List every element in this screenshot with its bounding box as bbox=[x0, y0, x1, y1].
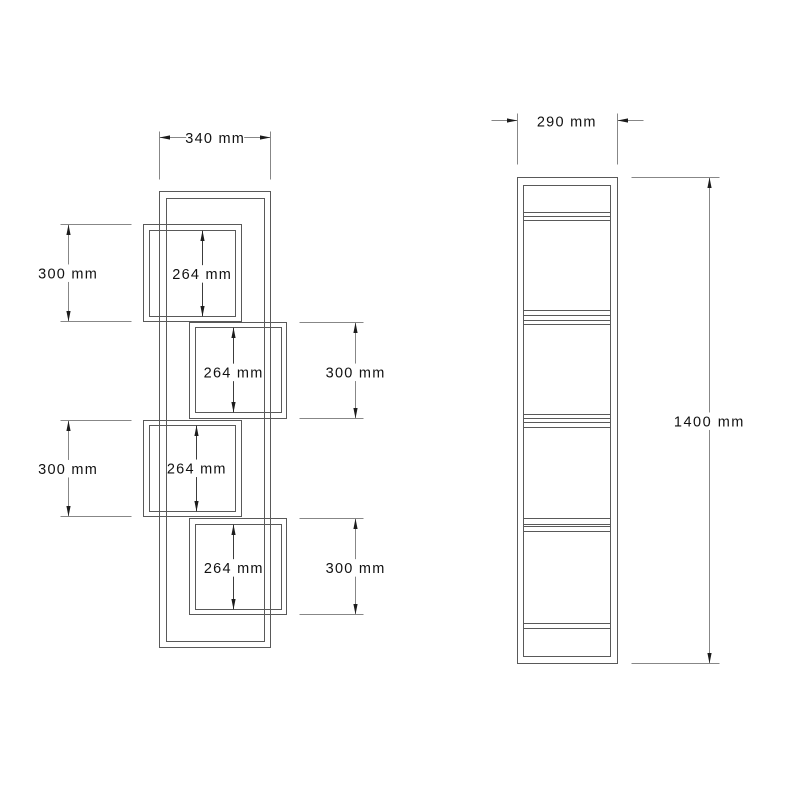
svg-text:264 mm: 264 mm bbox=[172, 267, 232, 283]
svg-text:264 mm: 264 mm bbox=[204, 561, 264, 577]
svg-text:300 mm: 300 mm bbox=[38, 266, 98, 282]
svg-text:264 mm: 264 mm bbox=[204, 366, 264, 382]
svg-text:300 mm: 300 mm bbox=[326, 561, 386, 577]
svg-text:300 mm: 300 mm bbox=[38, 462, 98, 478]
svg-text:1400 mm: 1400 mm bbox=[674, 414, 745, 430]
svg-text:290 mm: 290 mm bbox=[537, 115, 597, 131]
svg-text:300 mm: 300 mm bbox=[326, 366, 386, 382]
svg-text:264 mm: 264 mm bbox=[167, 462, 227, 478]
svg-text:340 mm: 340 mm bbox=[185, 131, 245, 147]
